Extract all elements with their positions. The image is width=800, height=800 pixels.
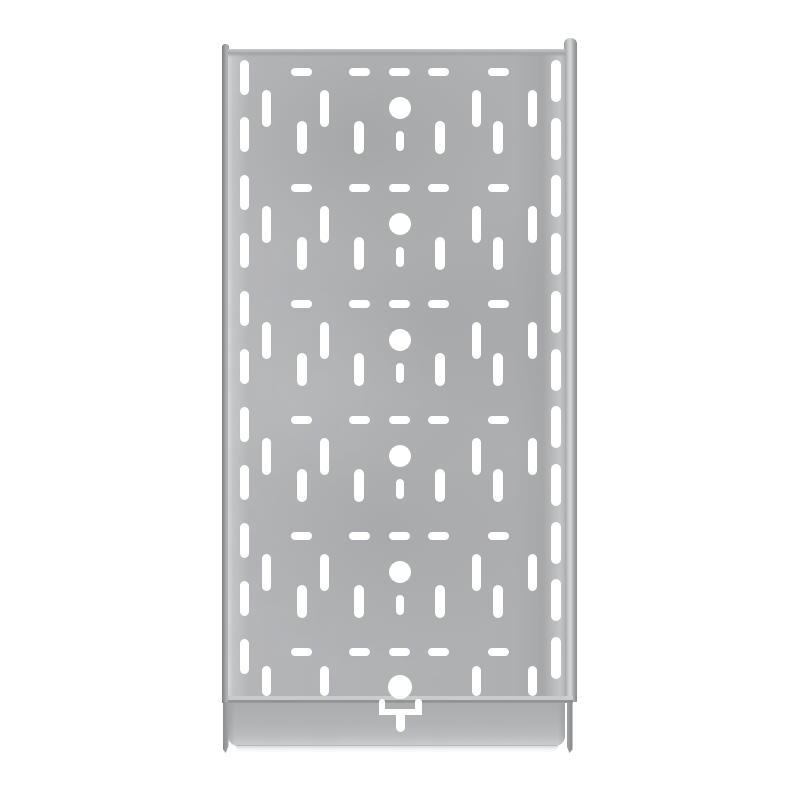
product-photo [0,0,800,800]
side-rail-right [564,38,577,702]
rail-tail-left [223,702,229,753]
panel-shading [228,49,565,698]
coupler-plate [228,703,565,746]
rail-tail-right [567,702,573,753]
coupler-bottom-shadow [236,745,558,753]
tray-panel [228,49,565,698]
